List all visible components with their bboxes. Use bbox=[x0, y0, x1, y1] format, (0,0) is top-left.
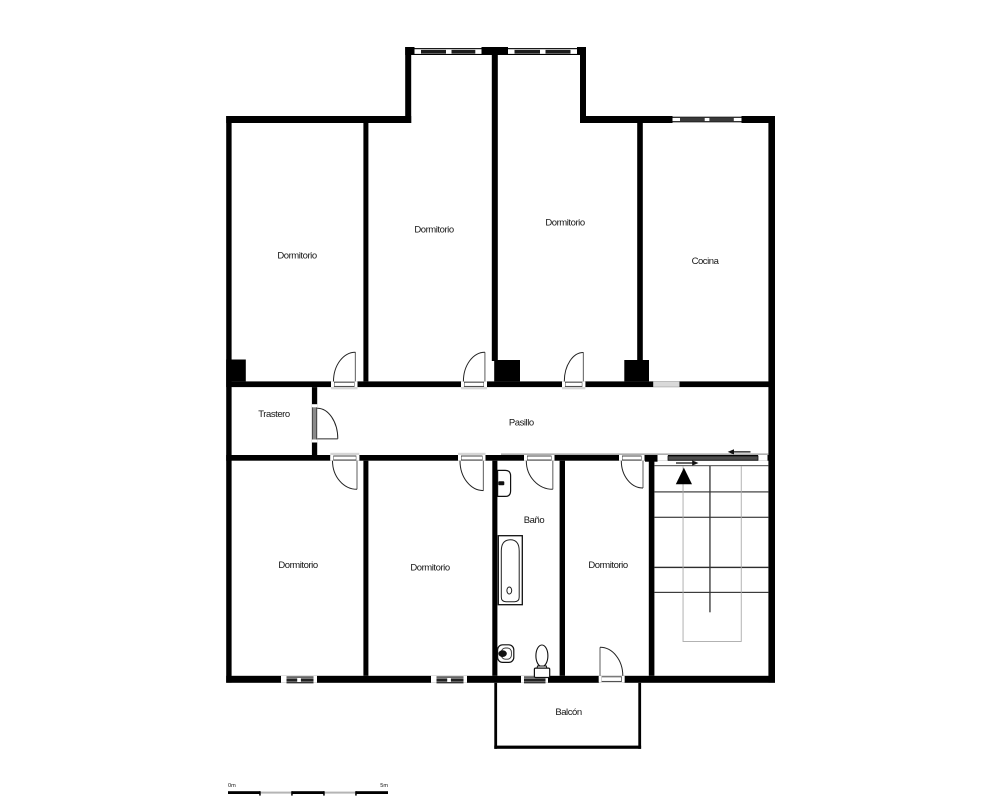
svg-text:Trastero: Trastero bbox=[258, 409, 290, 420]
svg-text:0m: 0m bbox=[228, 783, 236, 789]
svg-text:Dormitorio: Dormitorio bbox=[278, 560, 317, 571]
svg-text:Dormitorio: Dormitorio bbox=[545, 218, 584, 229]
svg-text:Balcón: Balcón bbox=[555, 707, 582, 718]
svg-text:Dormitorio: Dormitorio bbox=[588, 560, 627, 571]
svg-text:Dormitorio: Dormitorio bbox=[277, 250, 316, 261]
svg-text:Baño: Baño bbox=[524, 515, 545, 526]
svg-text:5m: 5m bbox=[380, 783, 388, 789]
svg-text:Cocina: Cocina bbox=[692, 256, 720, 267]
svg-text:Dormitorio: Dormitorio bbox=[414, 225, 453, 236]
svg-text:Dormitorio: Dormitorio bbox=[410, 562, 449, 573]
svg-text:Pasillo: Pasillo bbox=[509, 417, 534, 428]
